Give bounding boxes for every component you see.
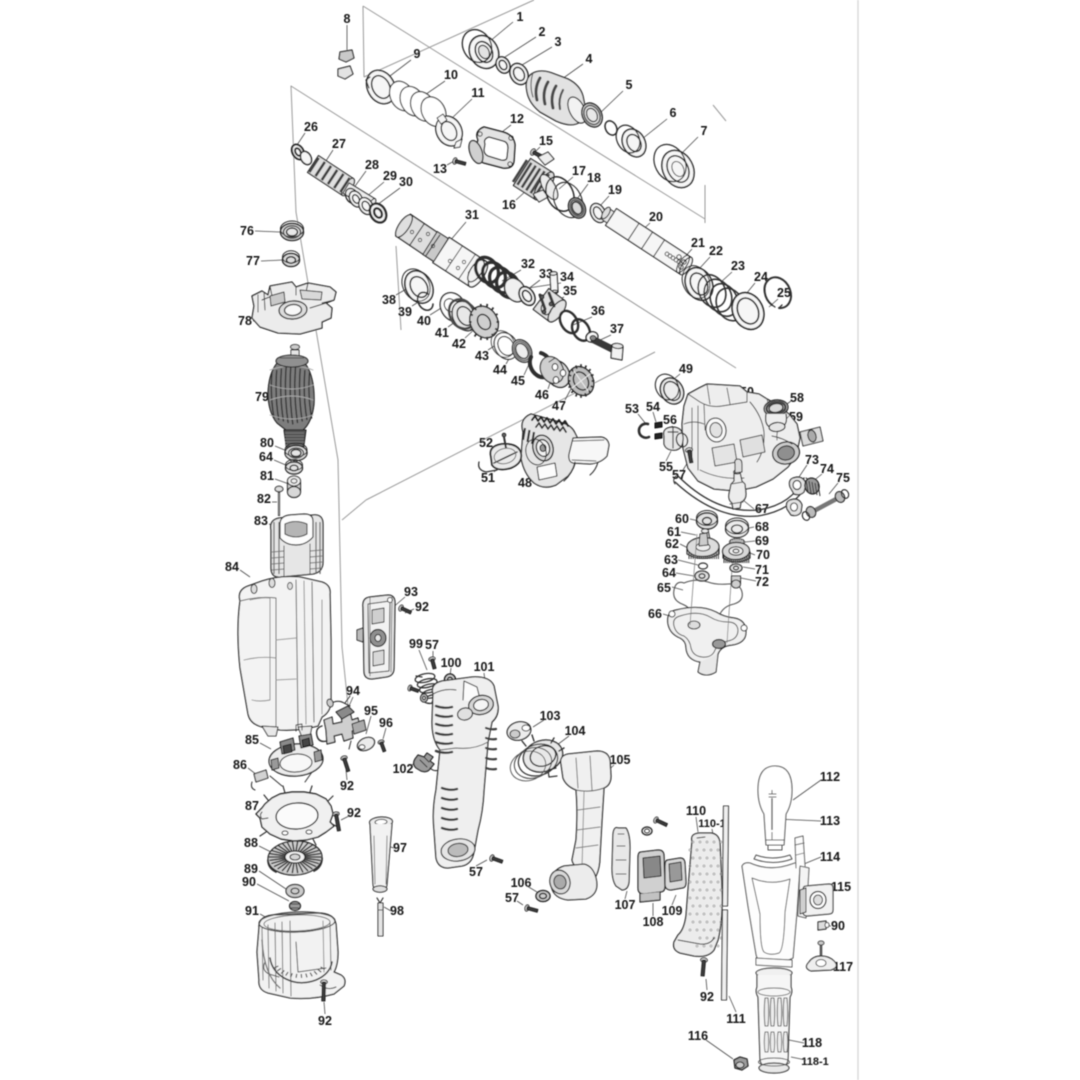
svg-text:57: 57 <box>505 891 519 905</box>
svg-text:32: 32 <box>521 257 535 271</box>
svg-text:42: 42 <box>452 337 466 351</box>
svg-text:111: 111 <box>726 1012 746 1026</box>
svg-text:30: 30 <box>399 175 413 189</box>
svg-text:35: 35 <box>563 284 577 298</box>
svg-text:114: 114 <box>820 850 840 864</box>
svg-text:52: 52 <box>479 436 493 450</box>
svg-text:90: 90 <box>242 875 256 889</box>
svg-text:105: 105 <box>610 753 631 767</box>
svg-text:118-1: 118-1 <box>801 1056 829 1068</box>
svg-text:9: 9 <box>414 47 421 61</box>
svg-text:112: 112 <box>820 770 840 784</box>
svg-text:70: 70 <box>756 548 770 562</box>
svg-text:99: 99 <box>409 637 423 651</box>
svg-text:68: 68 <box>755 520 769 534</box>
svg-text:44: 44 <box>493 363 507 377</box>
svg-text:20: 20 <box>649 210 663 224</box>
svg-text:3: 3 <box>555 35 562 49</box>
svg-text:92: 92 <box>340 779 354 793</box>
svg-text:53: 53 <box>625 402 639 416</box>
svg-text:18: 18 <box>587 171 601 185</box>
svg-text:23: 23 <box>731 259 745 273</box>
svg-text:86: 86 <box>233 758 247 772</box>
svg-text:110: 110 <box>686 804 706 818</box>
svg-text:102: 102 <box>393 762 414 776</box>
svg-text:92: 92 <box>318 1014 332 1028</box>
svg-text:118: 118 <box>802 1036 822 1050</box>
svg-text:82: 82 <box>257 492 271 506</box>
svg-text:64: 64 <box>259 450 273 464</box>
svg-text:8: 8 <box>344 12 351 26</box>
svg-text:7: 7 <box>701 124 708 138</box>
svg-text:22: 22 <box>709 244 723 258</box>
svg-text:2: 2 <box>539 25 546 39</box>
svg-text:106: 106 <box>511 876 532 890</box>
svg-text:12: 12 <box>510 112 524 126</box>
svg-text:36: 36 <box>591 304 605 318</box>
svg-text:92: 92 <box>347 806 361 820</box>
svg-text:10: 10 <box>444 68 458 82</box>
svg-text:65: 65 <box>657 581 671 595</box>
svg-text:101: 101 <box>474 660 495 674</box>
svg-text:98: 98 <box>390 904 404 918</box>
svg-text:46: 46 <box>535 388 549 402</box>
svg-text:64: 64 <box>662 566 676 580</box>
svg-text:26: 26 <box>304 120 318 134</box>
svg-text:37: 37 <box>610 322 624 336</box>
svg-text:78: 78 <box>238 314 252 328</box>
svg-text:29: 29 <box>383 169 397 183</box>
svg-text:66: 66 <box>648 607 662 621</box>
svg-text:107: 107 <box>615 898 636 912</box>
svg-text:58: 58 <box>790 391 804 405</box>
svg-text:51: 51 <box>481 471 495 485</box>
svg-text:55: 55 <box>659 460 673 474</box>
svg-text:34: 34 <box>560 270 574 284</box>
svg-text:104: 104 <box>565 724 586 738</box>
svg-text:92: 92 <box>700 990 714 1004</box>
svg-text:6: 6 <box>670 106 677 120</box>
svg-text:57: 57 <box>425 638 439 652</box>
svg-text:56: 56 <box>663 413 677 427</box>
svg-text:109: 109 <box>662 904 683 918</box>
svg-text:91: 91 <box>245 904 259 918</box>
svg-text:76: 76 <box>240 224 254 238</box>
svg-text:80: 80 <box>260 436 274 450</box>
svg-text:49: 49 <box>679 362 693 376</box>
svg-text:88: 88 <box>244 836 258 850</box>
svg-text:115: 115 <box>831 880 851 894</box>
svg-text:15: 15 <box>539 134 553 148</box>
svg-text:85: 85 <box>245 733 259 747</box>
svg-text:1: 1 <box>517 10 524 24</box>
svg-text:108: 108 <box>643 915 664 929</box>
svg-text:87: 87 <box>245 799 259 813</box>
svg-text:28: 28 <box>365 158 379 172</box>
svg-text:17: 17 <box>572 164 586 178</box>
svg-text:75: 75 <box>836 471 850 485</box>
svg-text:62: 62 <box>665 537 679 551</box>
svg-text:5: 5 <box>626 78 633 92</box>
svg-text:21: 21 <box>691 236 705 250</box>
svg-text:57: 57 <box>469 865 483 879</box>
svg-text:93: 93 <box>404 585 418 599</box>
svg-text:63: 63 <box>664 553 678 567</box>
svg-text:72: 72 <box>755 575 769 589</box>
svg-text:31: 31 <box>465 208 479 222</box>
svg-text:83: 83 <box>254 514 268 528</box>
svg-text:110-1: 110-1 <box>698 818 726 830</box>
svg-text:16: 16 <box>502 198 516 212</box>
svg-text:11: 11 <box>471 86 484 100</box>
svg-text:69: 69 <box>755 534 769 548</box>
svg-text:84: 84 <box>225 560 239 574</box>
svg-text:45: 45 <box>511 374 525 388</box>
svg-text:94: 94 <box>346 684 360 698</box>
svg-text:40: 40 <box>417 314 431 328</box>
svg-text:113: 113 <box>820 814 840 828</box>
svg-text:38: 38 <box>382 293 396 307</box>
svg-text:79: 79 <box>255 390 269 404</box>
svg-text:47: 47 <box>552 399 566 413</box>
svg-text:97: 97 <box>393 841 407 855</box>
svg-text:77: 77 <box>246 254 260 268</box>
svg-text:81: 81 <box>260 469 274 483</box>
svg-text:19: 19 <box>608 183 622 197</box>
svg-text:13: 13 <box>433 162 447 176</box>
svg-text:43: 43 <box>475 349 489 363</box>
svg-text:92: 92 <box>415 600 429 614</box>
svg-text:90: 90 <box>831 919 845 933</box>
svg-text:39: 39 <box>398 305 412 319</box>
svg-text:60: 60 <box>675 512 689 526</box>
svg-text:89: 89 <box>244 862 258 876</box>
svg-text:41: 41 <box>435 326 449 340</box>
svg-text:4: 4 <box>586 52 593 66</box>
svg-text:116: 116 <box>688 1029 708 1043</box>
svg-text:27: 27 <box>332 137 346 151</box>
svg-text:74: 74 <box>820 462 834 476</box>
